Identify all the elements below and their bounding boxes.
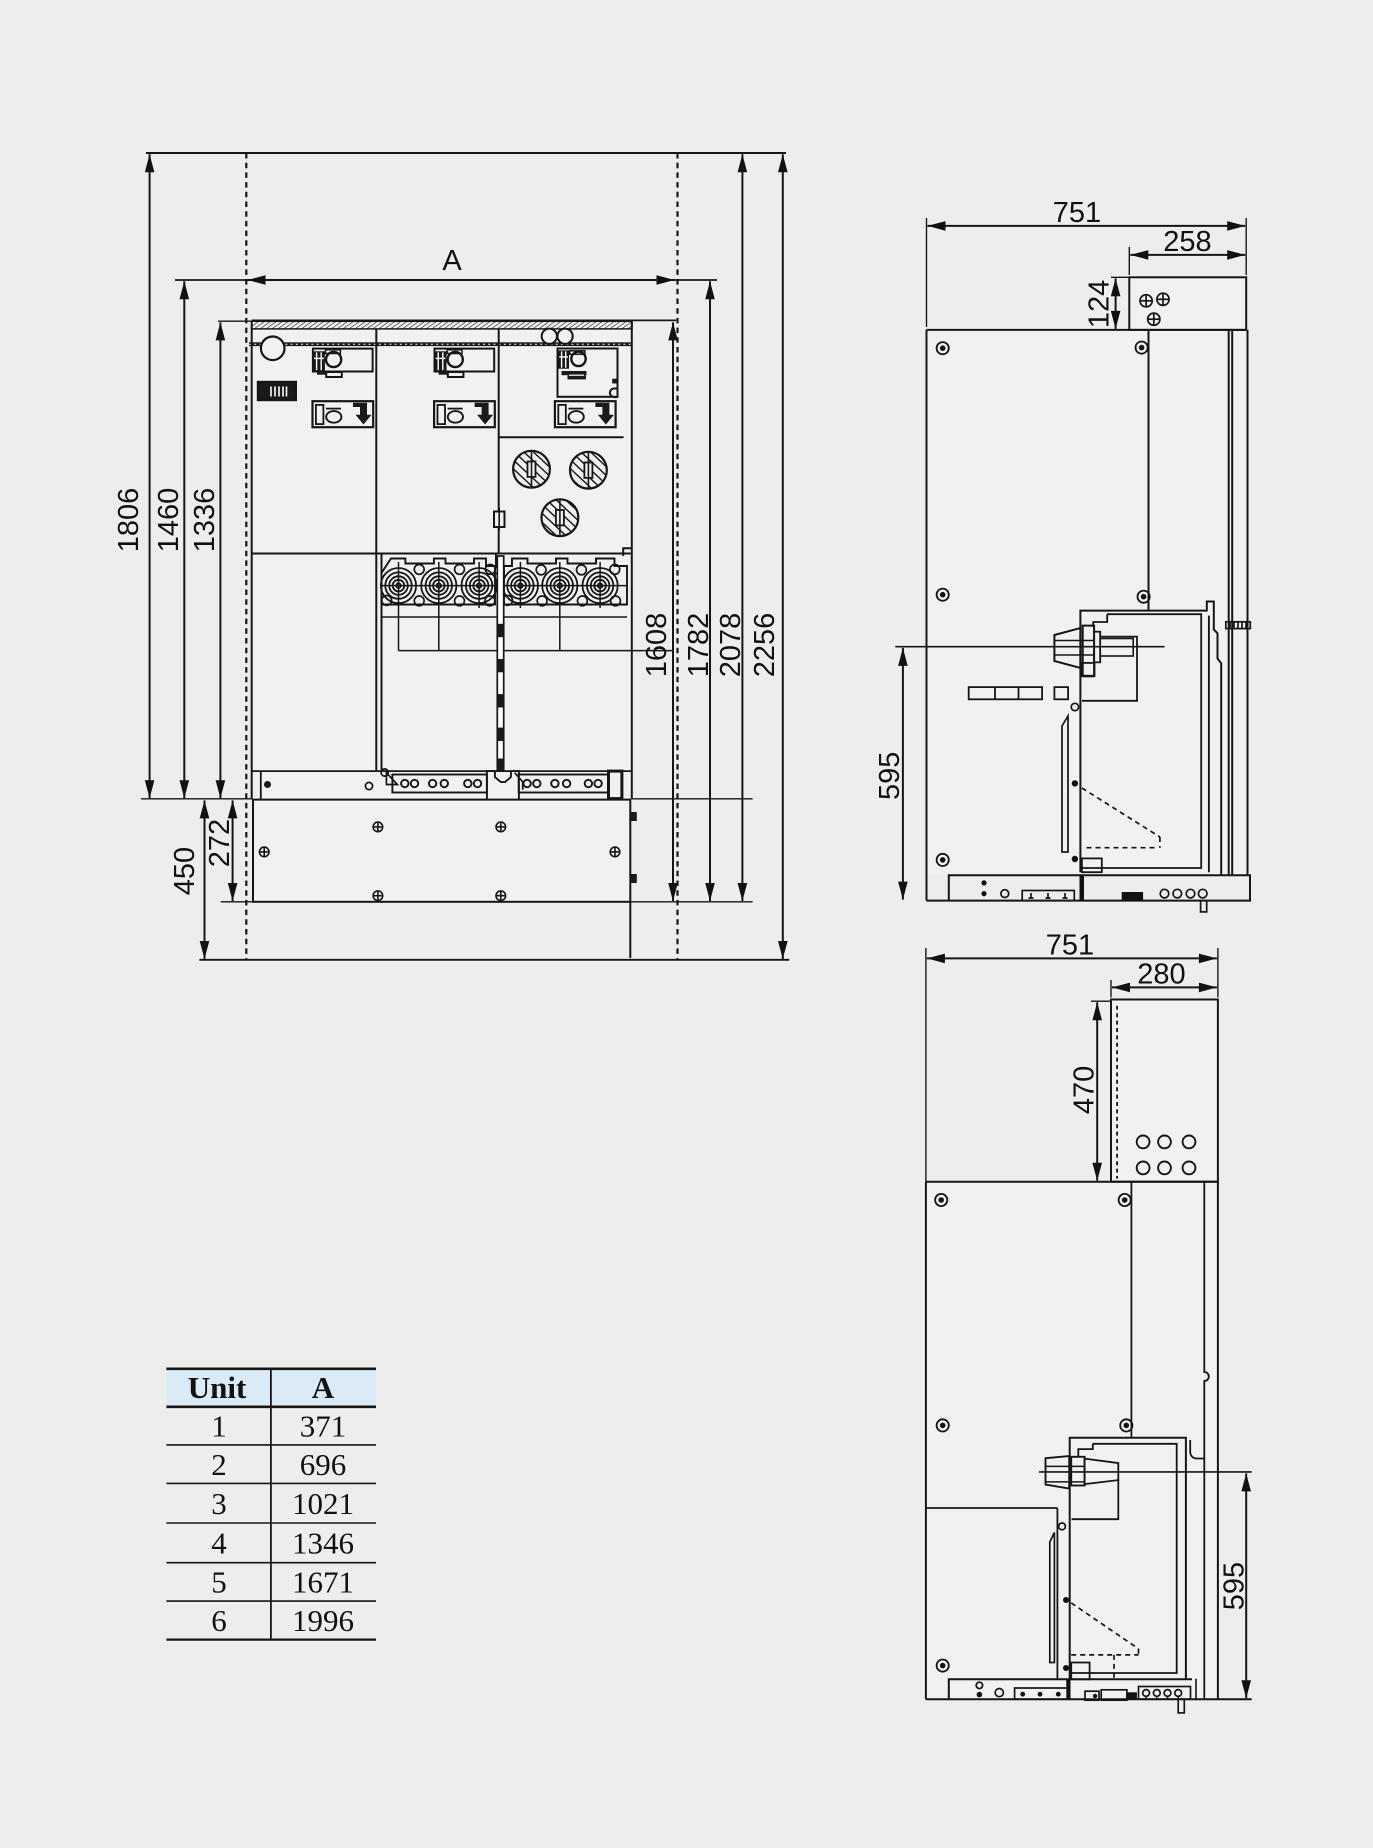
svg-text:595: 595 — [874, 752, 906, 800]
svg-text:751: 751 — [1053, 197, 1101, 229]
svg-text:1460: 1460 — [153, 488, 185, 553]
svg-text:470: 470 — [1068, 1066, 1100, 1114]
svg-text:2: 2 — [211, 1447, 227, 1482]
svg-text:1996: 1996 — [292, 1603, 354, 1638]
svg-text:A: A — [312, 1370, 335, 1405]
svg-text:371: 371 — [300, 1409, 347, 1444]
svg-text:6: 6 — [211, 1603, 227, 1638]
svg-text:1782: 1782 — [683, 613, 715, 678]
svg-text:4: 4 — [211, 1526, 227, 1561]
svg-text:751: 751 — [1046, 930, 1094, 962]
svg-text:3: 3 — [211, 1486, 227, 1521]
svg-text:2256: 2256 — [749, 613, 781, 678]
svg-text:1608: 1608 — [641, 613, 673, 678]
svg-text:272: 272 — [204, 819, 236, 867]
svg-text:450: 450 — [169, 847, 201, 895]
svg-text:696: 696 — [300, 1447, 347, 1482]
svg-text:2078: 2078 — [715, 613, 747, 678]
svg-text:5: 5 — [211, 1565, 227, 1600]
svg-text:124: 124 — [1084, 280, 1116, 328]
svg-text:1336: 1336 — [189, 488, 221, 553]
svg-text:Unit: Unit — [188, 1370, 247, 1405]
svg-text:A: A — [442, 245, 462, 277]
svg-text:1806: 1806 — [113, 488, 145, 553]
svg-text:1671: 1671 — [292, 1565, 354, 1600]
svg-text:1346: 1346 — [292, 1526, 354, 1561]
svg-text:258: 258 — [1163, 226, 1211, 258]
svg-text:595: 595 — [1218, 1562, 1250, 1610]
svg-text:1021: 1021 — [292, 1486, 354, 1521]
svg-text:1: 1 — [211, 1409, 227, 1444]
svg-text:280: 280 — [1137, 959, 1185, 991]
